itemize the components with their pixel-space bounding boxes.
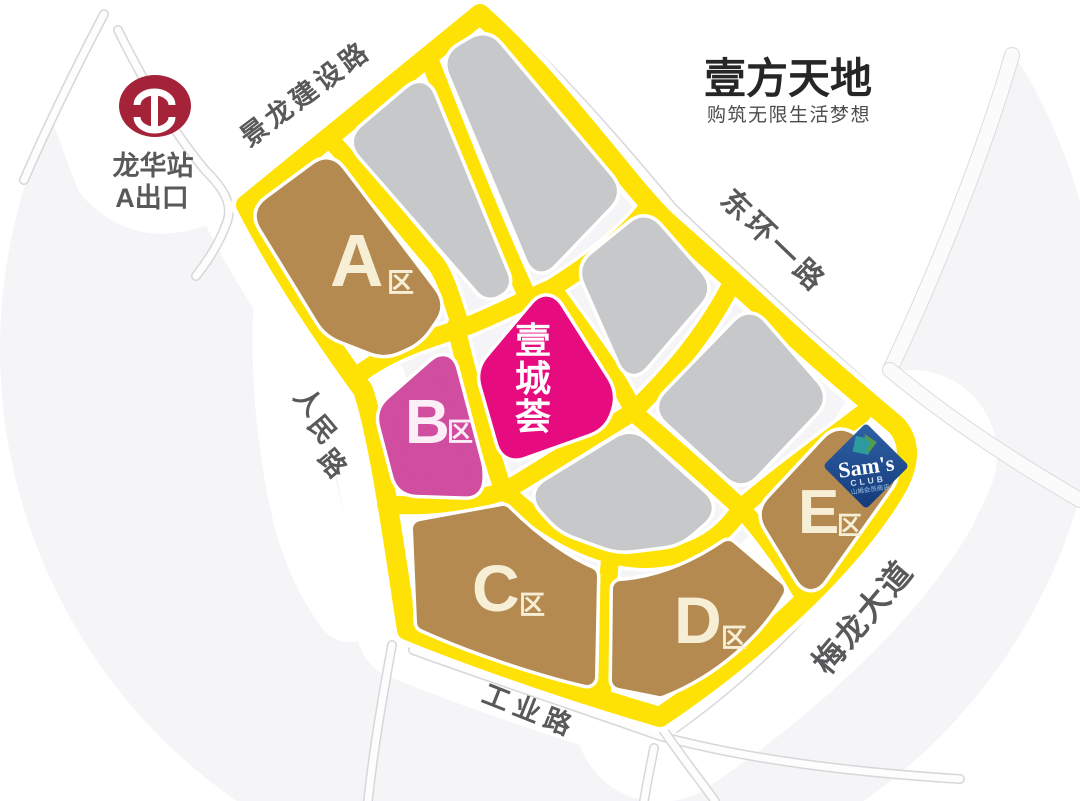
svg-text:区: 区 bbox=[721, 623, 747, 653]
svg-text:区: 区 bbox=[519, 590, 545, 620]
svg-text:壹: 壹 bbox=[515, 320, 551, 361]
svg-text:D: D bbox=[674, 583, 722, 657]
svg-text:荟: 荟 bbox=[515, 396, 551, 437]
svg-text:龙华站: 龙华站 bbox=[113, 150, 194, 181]
svg-text:A出口: A出口 bbox=[115, 183, 189, 213]
svg-text:A: A bbox=[330, 219, 383, 302]
svg-text:B: B bbox=[405, 388, 450, 457]
svg-text:购筑无限生活梦想: 购筑无限生活梦想 bbox=[707, 104, 871, 126]
svg-text:C: C bbox=[472, 551, 520, 625]
svg-text:区: 区 bbox=[387, 268, 414, 298]
svg-text:E: E bbox=[798, 478, 839, 547]
svg-text:区: 区 bbox=[447, 417, 473, 447]
svg-text:区: 区 bbox=[837, 512, 862, 540]
svg-text:壹方天地: 壹方天地 bbox=[704, 56, 872, 103]
svg-text:城: 城 bbox=[515, 358, 551, 399]
